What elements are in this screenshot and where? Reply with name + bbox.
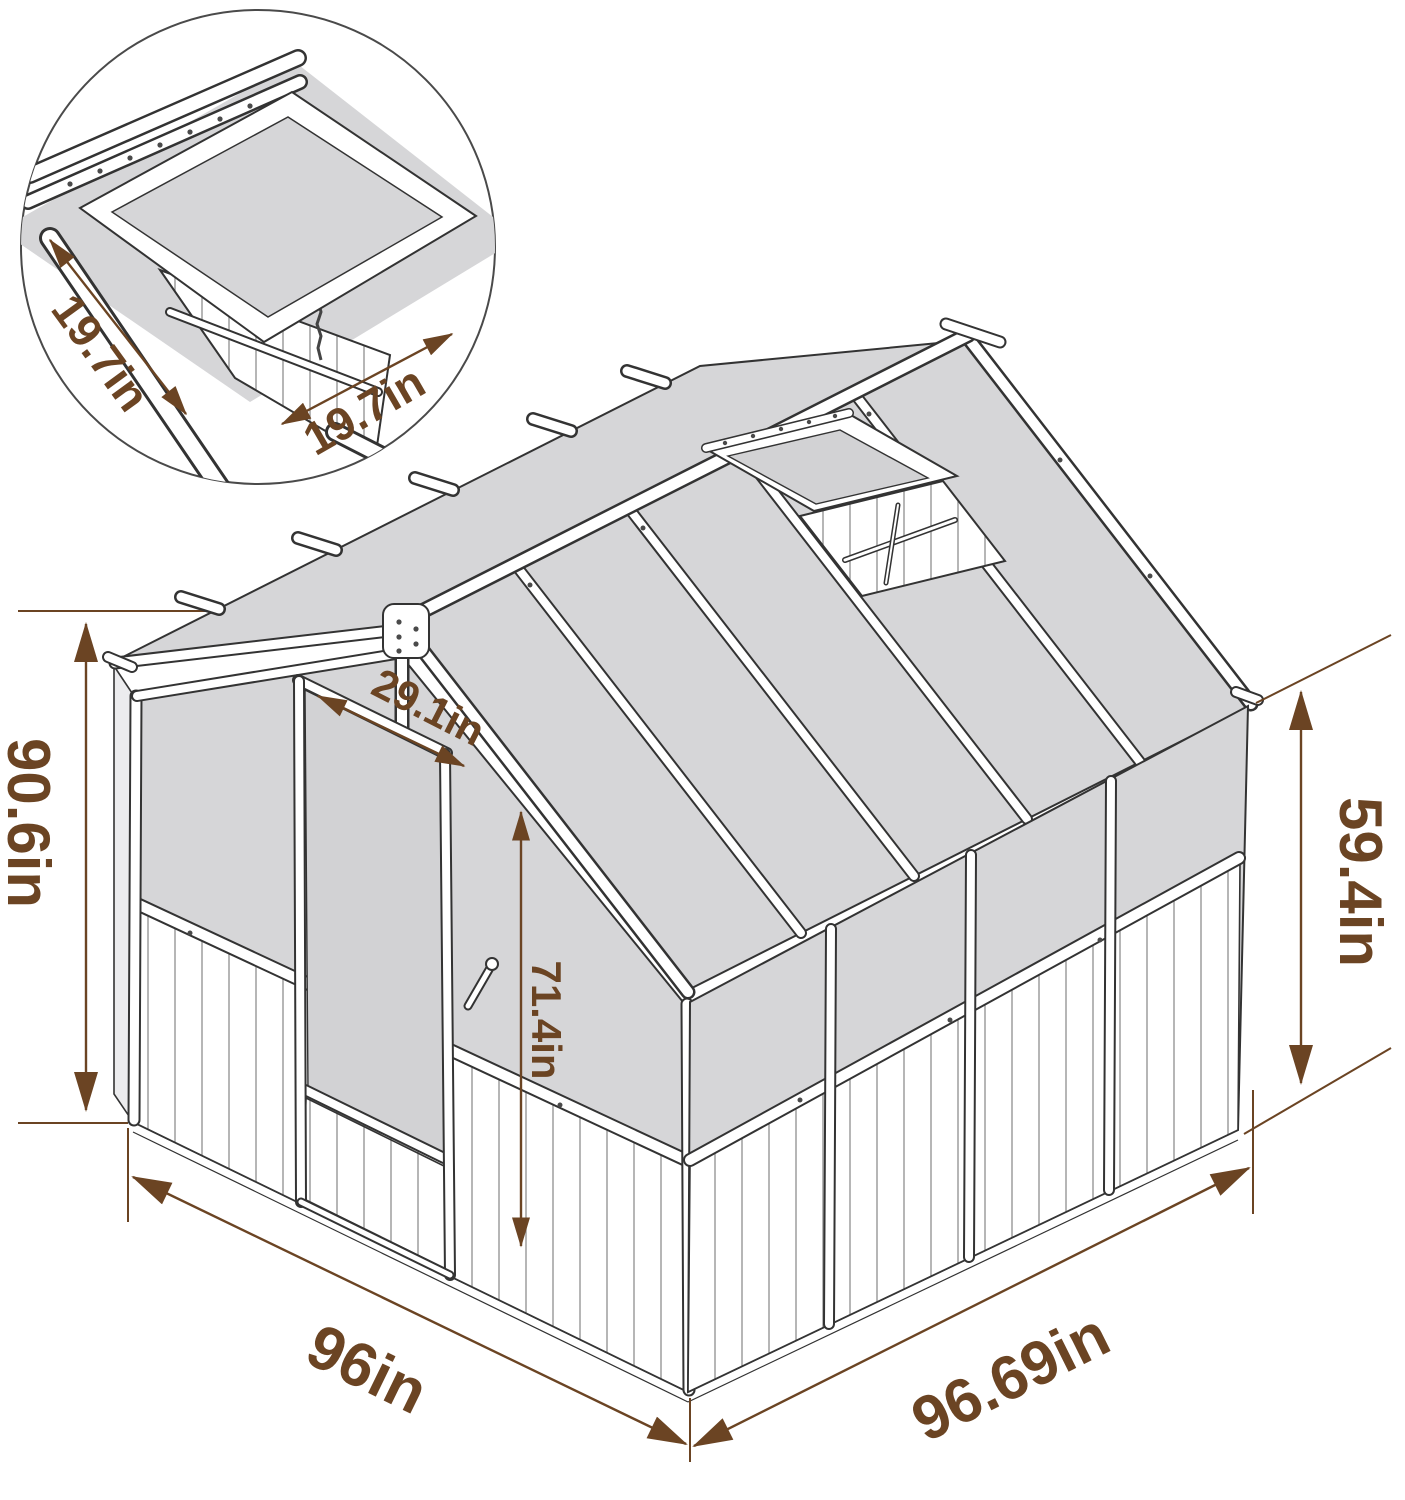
overall-height-label: 90.6in — [0, 738, 62, 908]
eave-height-dimension: 59.4in — [1244, 635, 1394, 1134]
door-height-label: 71.4in — [523, 960, 570, 1079]
depth-label: 96.69in — [901, 1300, 1120, 1456]
eave-height-label: 59.4in — [1327, 797, 1394, 967]
front-width-label: 96in — [296, 1311, 438, 1427]
greenhouse-dimension-diagram: 19.7in 19.7in 90.6in 29.1in 71.4in 96in … — [0, 0, 1405, 1500]
greenhouse-dimension-diagram-page: 19.7in 19.7in 90.6in 29.1in 71.4in 96in … — [0, 0, 1405, 1500]
gable-peak-bracket — [383, 604, 429, 658]
vent-detail-inset: 19.7in 19.7in — [0, 10, 520, 505]
door-glazing — [305, 690, 444, 1160]
overall-height-dimension: 90.6in — [0, 624, 128, 1123]
greenhouse-drawing — [108, 324, 1258, 1402]
